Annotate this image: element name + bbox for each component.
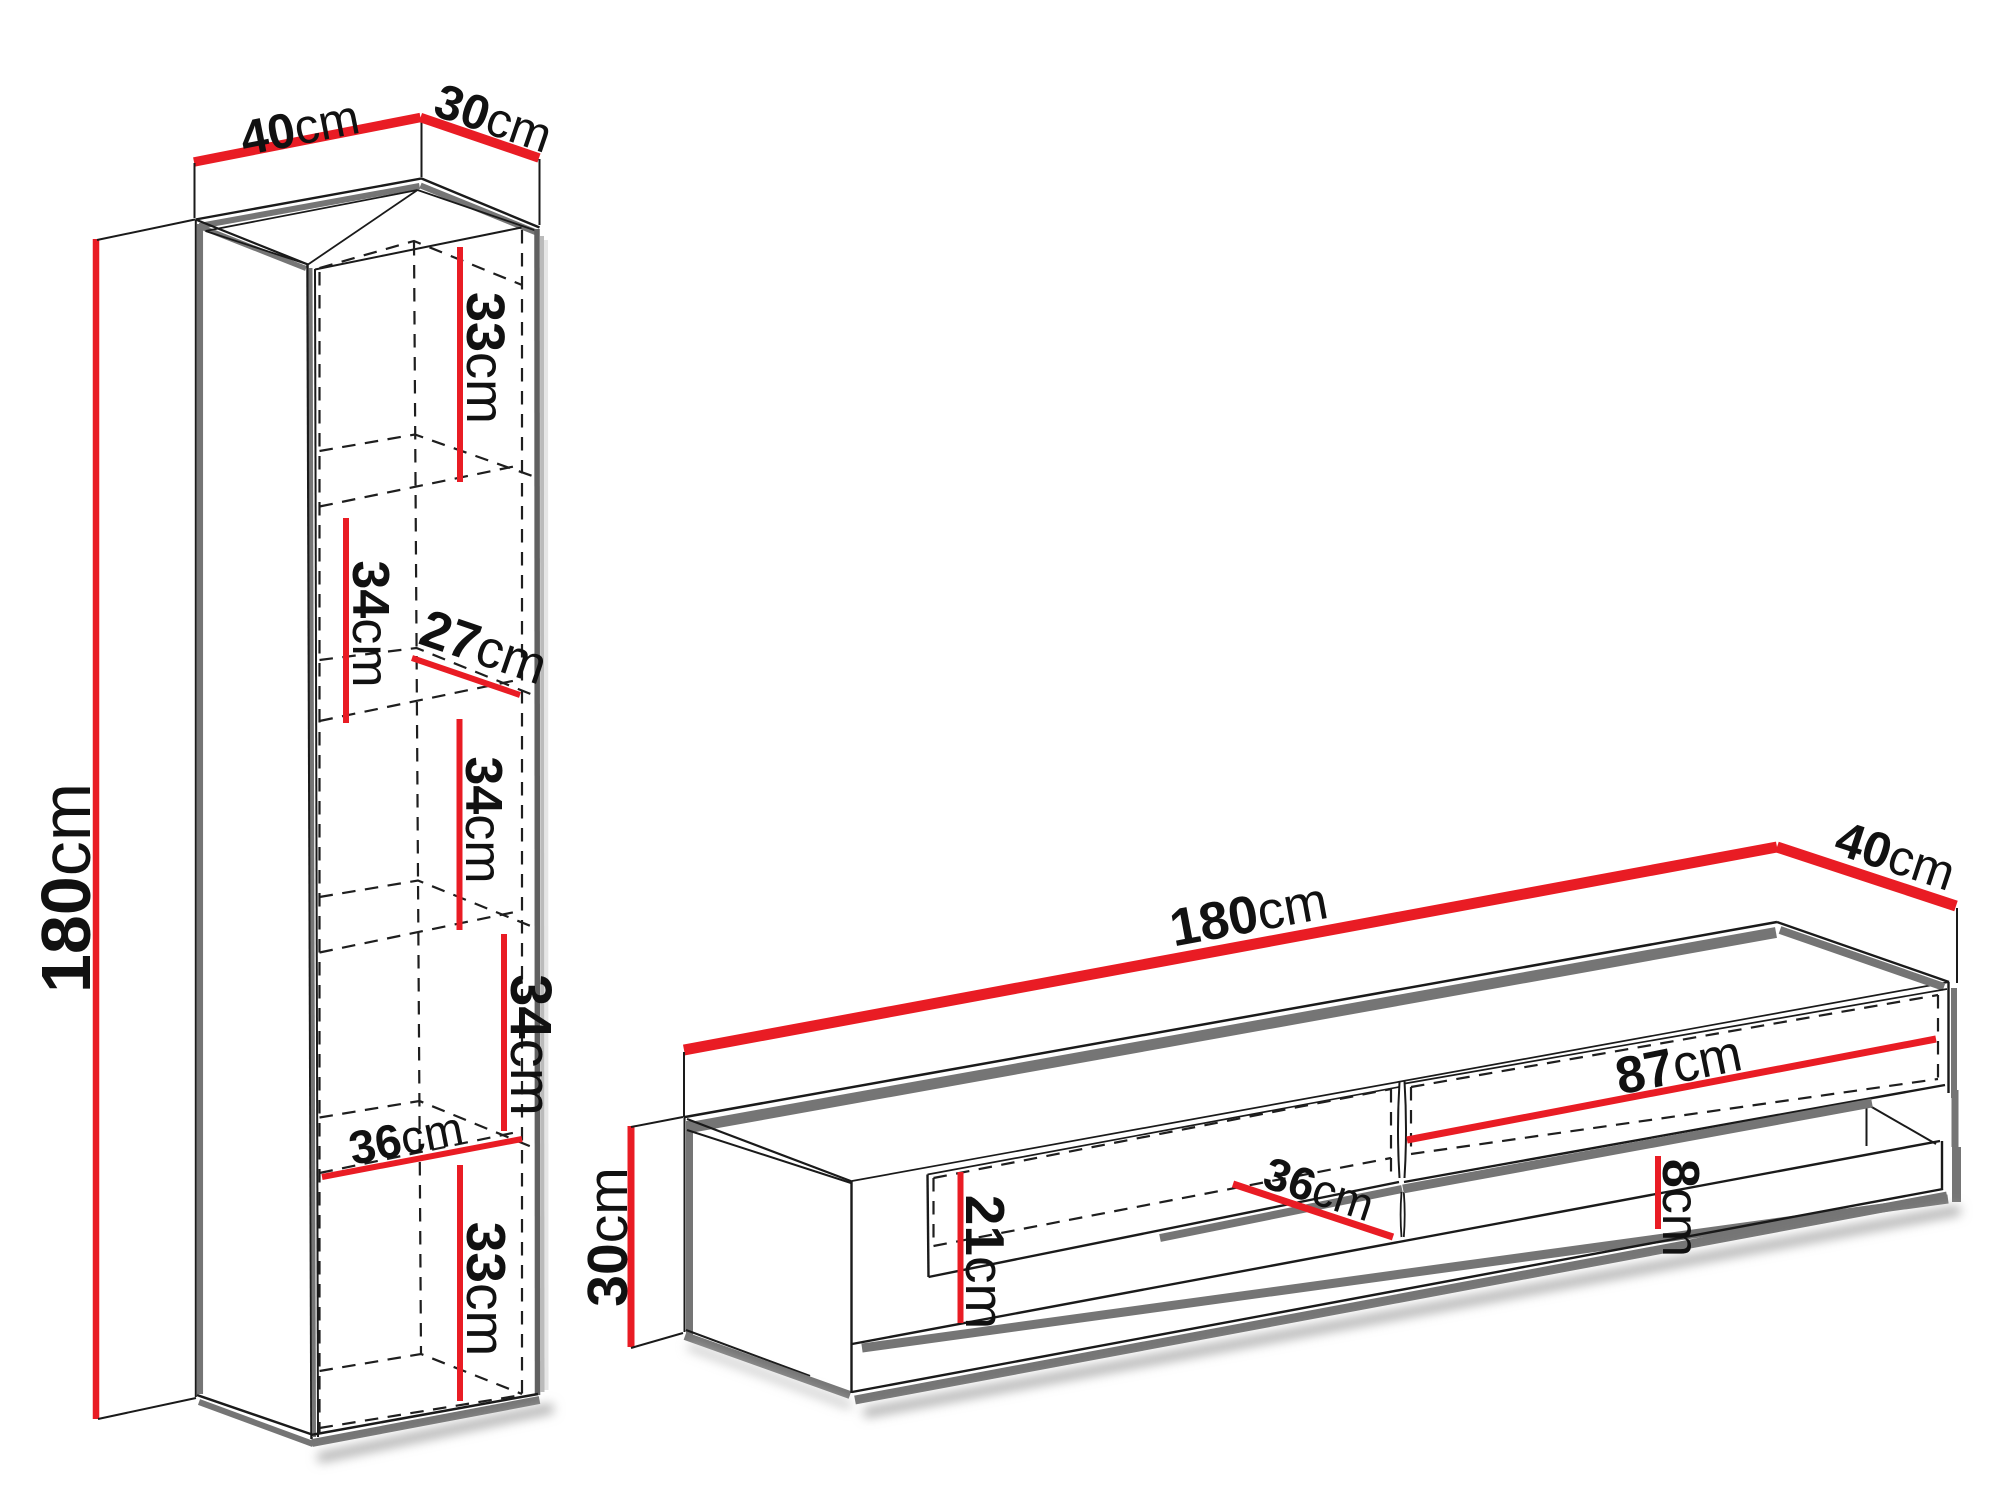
svg-text:33cm: 33cm: [455, 1222, 517, 1357]
svg-text:34cm: 34cm: [498, 974, 563, 1116]
svg-text:30cm: 30cm: [576, 1167, 640, 1306]
svg-text:21cm: 21cm: [954, 1195, 1016, 1330]
svg-text:34cm: 34cm: [454, 756, 512, 883]
svg-text:34cm: 34cm: [341, 560, 399, 687]
svg-text:33cm: 33cm: [455, 292, 515, 424]
svg-text:180cm: 180cm: [27, 783, 105, 993]
svg-text:8cm: 8cm: [1651, 1159, 1709, 1257]
